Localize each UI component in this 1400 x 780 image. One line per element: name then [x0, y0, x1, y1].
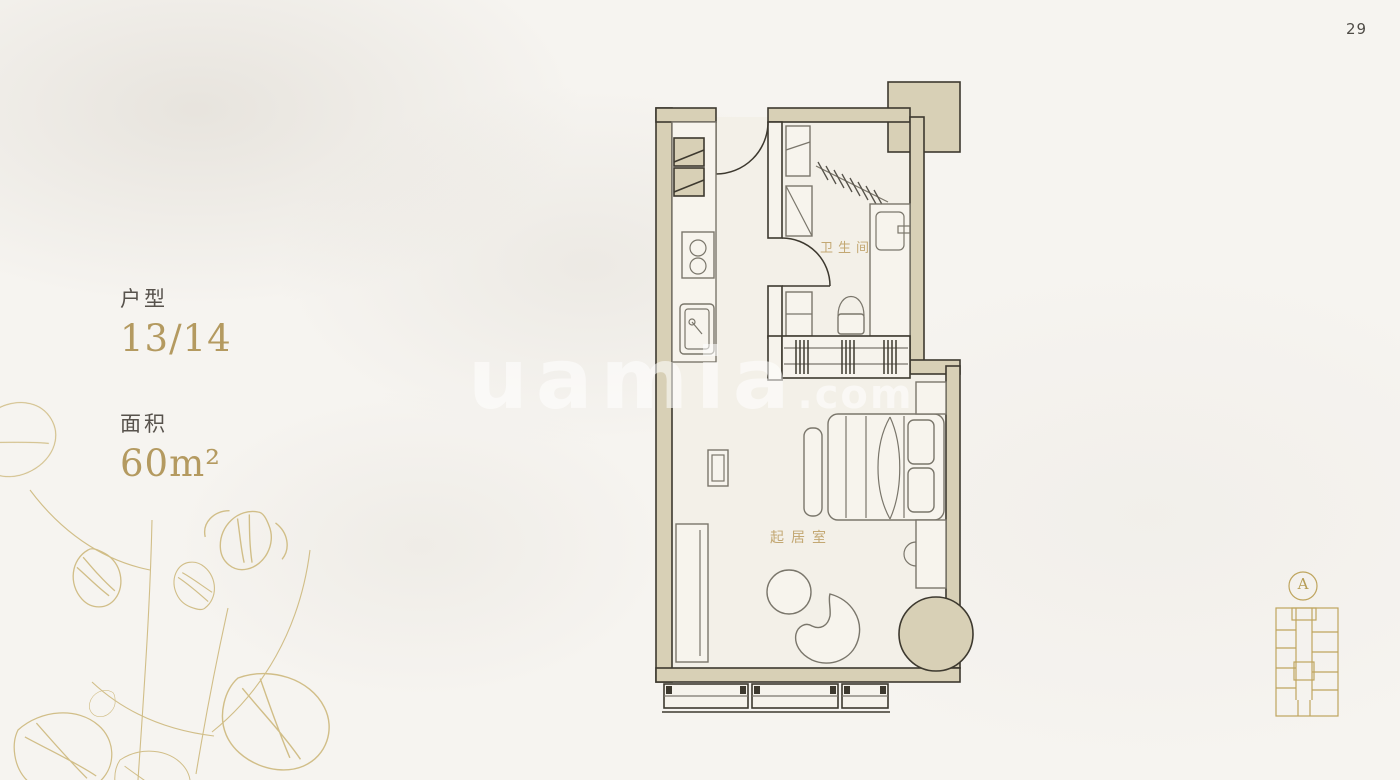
stove-icon: [682, 232, 714, 278]
building-key-plan: [1276, 572, 1338, 716]
round-column: [899, 597, 973, 671]
nightstand: [916, 382, 946, 414]
kitchen-sink-icon: [680, 304, 714, 354]
unit-type-value: 13/14: [120, 317, 232, 360]
bed-bench: [804, 428, 822, 516]
nightstand: [916, 520, 946, 588]
bell-flower-icon: [64, 542, 130, 614]
brochure-page: uamia.com 29 户型 13/14 面积 60m² 卫生间 起居室 A: [0, 0, 1400, 780]
washbasin-icon: [870, 204, 910, 336]
tv-cabinet: [676, 524, 708, 662]
ottoman: [767, 570, 811, 614]
leaf-icon: [110, 746, 194, 780]
unit-info: 户型 13/14 面积 60m²: [120, 283, 232, 485]
leaf-icon: [14, 713, 112, 780]
unit-type-label: 户型: [120, 283, 232, 313]
north-letter: A: [1293, 575, 1313, 593]
bell-flower-icon: [196, 498, 295, 582]
bay-windows: [662, 684, 890, 712]
kitchen: [672, 122, 716, 362]
leaf-icon: [0, 389, 68, 491]
pillow: [908, 420, 934, 464]
floor-plan: [656, 82, 973, 712]
page-number: 29: [1346, 20, 1367, 38]
pillow: [908, 468, 934, 512]
bath-shelf: [786, 126, 810, 176]
living-room-label: 起居室: [770, 527, 833, 547]
flower-bud-icon: [85, 684, 121, 722]
bell-flower-icon: [165, 555, 224, 617]
area-value: 60m²: [120, 442, 232, 485]
desk: [708, 450, 728, 486]
bed: [828, 414, 944, 520]
area-label: 面积: [120, 408, 232, 438]
bathroom-label: 卫生间: [820, 237, 874, 256]
wardrobe: [782, 336, 910, 378]
